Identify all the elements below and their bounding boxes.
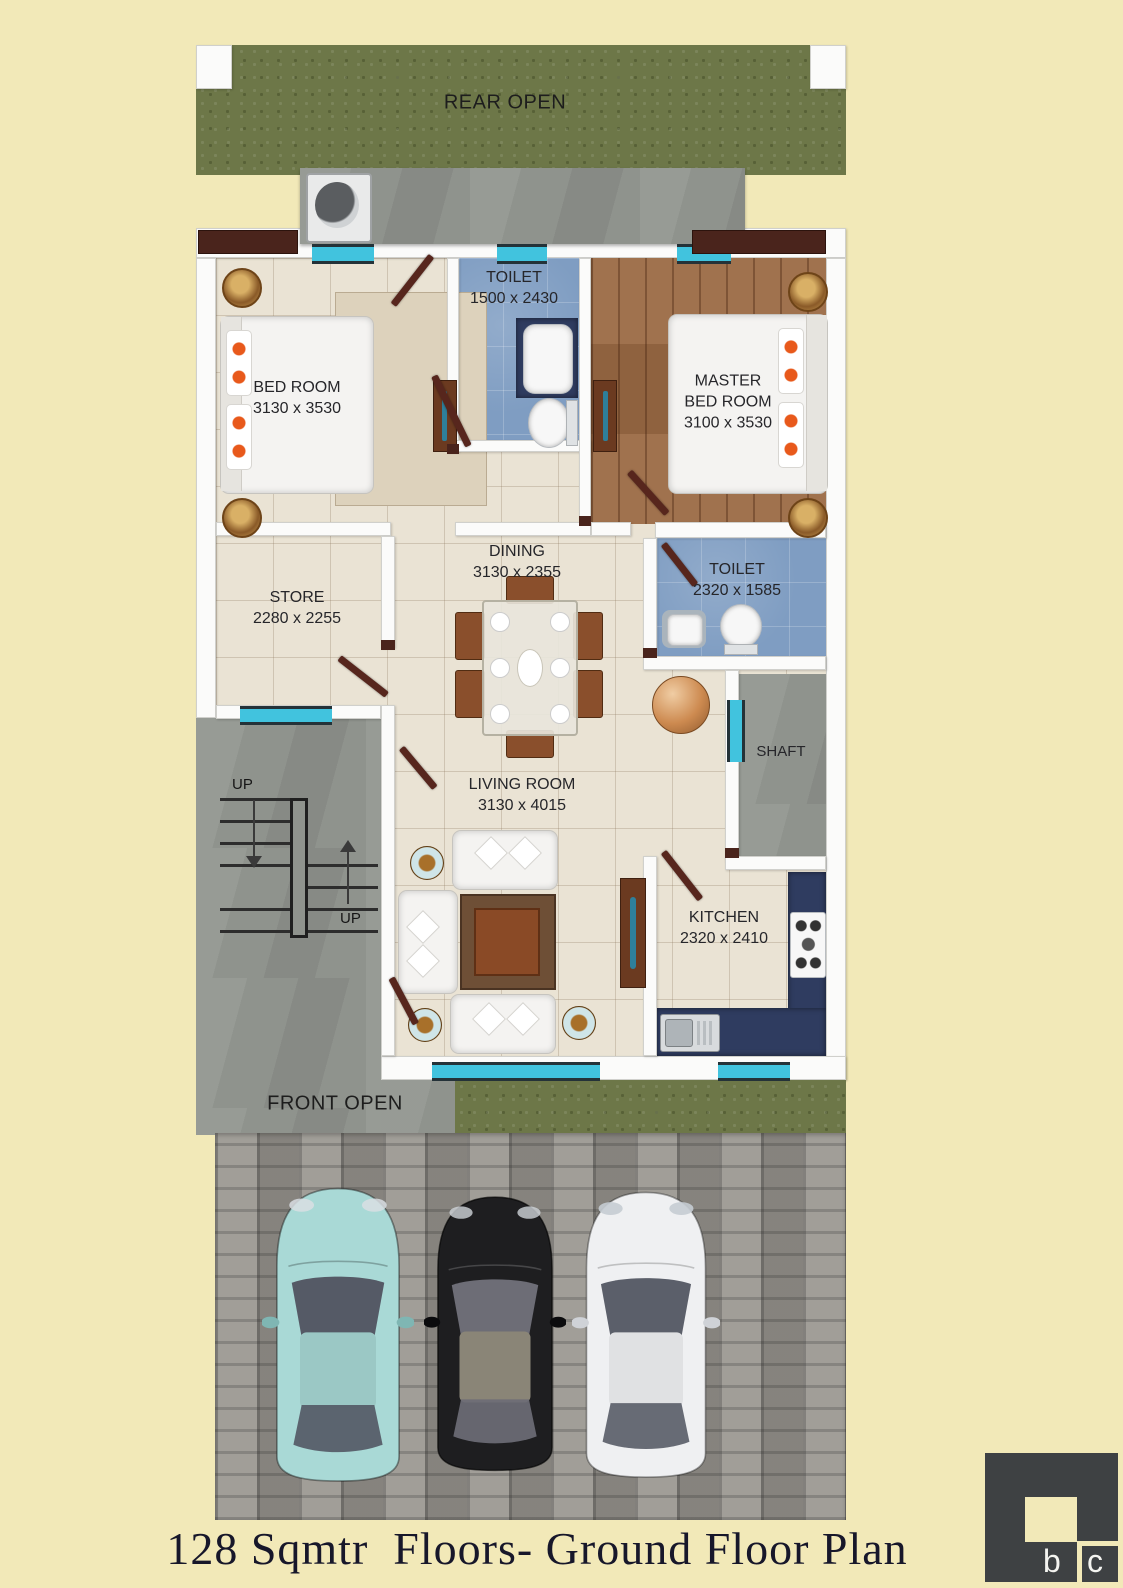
side-table	[410, 846, 444, 880]
master-bedside-table	[788, 498, 828, 538]
sofa-cushion	[406, 944, 440, 978]
kitchen-sink-icon	[660, 1014, 720, 1052]
stair-tread	[220, 820, 290, 823]
store-dims: 2280 x 2255	[253, 608, 341, 629]
plate	[550, 658, 570, 678]
sofa-cushion	[506, 1002, 540, 1036]
plate	[550, 704, 570, 724]
side-table	[562, 1006, 596, 1040]
kitchen-name: KITCHEN	[680, 907, 768, 928]
wall-left	[196, 258, 216, 718]
toilet-mid-name: TOILET	[693, 559, 781, 580]
wall-mid-master	[591, 522, 631, 536]
headlight	[362, 1199, 387, 1212]
window-toilet-top	[497, 244, 547, 264]
bed-pillow	[226, 330, 252, 396]
kitchen-dims: 2320 x 2410	[680, 928, 768, 949]
logo-letter-b: b	[1043, 1545, 1061, 1577]
wc-toilet-top	[528, 398, 570, 448]
headlight	[289, 1199, 314, 1212]
up-label-upper: UP	[340, 910, 361, 927]
teal-car	[262, 1152, 414, 1516]
car-mirror	[424, 1317, 440, 1328]
dining-centerpiece	[517, 649, 543, 687]
sofa-bottom	[450, 994, 556, 1054]
master-name-line1: MASTER	[684, 370, 772, 391]
wardrobe-bedroom	[198, 230, 298, 254]
dining-dims: 3130 x 2355	[473, 562, 561, 583]
logo-letter-c: c	[1087, 1545, 1103, 1577]
dining-name: DINING	[473, 541, 561, 562]
stair-tread	[220, 798, 290, 801]
living-name: LIVING ROOM	[469, 774, 576, 795]
tv-cabinet-living	[620, 878, 646, 988]
toilet-mid-label: TOILET 2320 x 1585	[693, 559, 781, 601]
shaft-floor	[739, 674, 826, 860]
master-name-line2: BED ROOM	[684, 391, 772, 412]
store-label: STORE 2280 x 2255	[253, 587, 341, 629]
wc-tank-top	[566, 400, 578, 446]
wall-shaft-left	[725, 670, 739, 862]
car-mirror	[262, 1317, 279, 1329]
dining-chair	[455, 612, 485, 660]
rear-open-label: REAR OPEN	[444, 92, 566, 115]
rear-pillar-left	[196, 45, 232, 89]
wall-toilet-mid-bottom	[643, 656, 826, 670]
stair-arrow-up	[347, 852, 349, 904]
washing-machine-door	[315, 182, 359, 228]
bedside-table	[222, 498, 262, 538]
living-dims: 3130 x 4015	[469, 795, 576, 816]
stair-tread	[304, 886, 378, 889]
bedroom-name: BED ROOM	[253, 377, 341, 398]
plate	[550, 612, 570, 632]
toilet-top-name: TOILET	[470, 267, 558, 288]
master-bedside-table	[788, 272, 828, 312]
sofa-cushion	[474, 836, 508, 870]
master-pillow	[778, 402, 804, 468]
wall-mid-center	[455, 522, 591, 536]
master-bed-headboard	[806, 315, 827, 491]
stair-divider-wall	[290, 798, 308, 938]
kitchen-label: KITCHEN 2320 x 2410	[680, 907, 768, 949]
sofa-cushion	[472, 1002, 506, 1036]
rear-window	[453, 1399, 536, 1443]
car-mirror	[550, 1317, 566, 1328]
rear-pillar-right	[810, 45, 846, 89]
door-jamb	[643, 648, 657, 658]
rear-window	[293, 1405, 382, 1452]
wardrobe-master	[692, 230, 826, 254]
sink-bowl	[665, 1019, 693, 1047]
tv-screen-icon	[603, 391, 608, 441]
sofa-top	[452, 830, 558, 890]
tv-unit-master	[593, 380, 617, 452]
stair-tread	[304, 864, 378, 867]
windshield	[601, 1278, 691, 1337]
wall-toilet-master	[579, 258, 591, 524]
logo-cutout	[1025, 1497, 1077, 1542]
front-yard-grass	[455, 1080, 846, 1135]
wall-stairs-living	[381, 705, 395, 1056]
wall-dining-toilet-mid	[643, 538, 657, 656]
stair-arrow-down-head	[246, 856, 262, 868]
wall-right	[826, 258, 846, 1080]
window-shaft	[727, 700, 745, 762]
stove-icon	[790, 912, 826, 978]
wc-toilet-mid	[720, 604, 762, 648]
floor-lamp-icon	[652, 676, 710, 734]
wall-kitchen-top	[725, 856, 826, 870]
logo-divider-vertical	[1077, 1541, 1082, 1582]
floor-plan-canvas: REAR OPEN	[0, 0, 1123, 1588]
front-open-label: FRONT OPEN	[267, 1093, 403, 1116]
bed-pillow	[226, 404, 252, 470]
windshield	[452, 1279, 538, 1336]
master-pillow	[778, 328, 804, 394]
stair-tread	[220, 842, 290, 845]
sink-toilet-top	[523, 324, 573, 394]
up-label-lower: UP	[232, 776, 253, 793]
rear-window	[603, 1403, 690, 1449]
tv-screen-icon	[630, 897, 636, 969]
toilet-top-label: TOILET 1500 x 2430	[470, 267, 558, 309]
door-jamb	[447, 444, 459, 454]
dining-chair	[455, 670, 485, 718]
car-roof-shade	[609, 1332, 683, 1406]
bedside-table	[222, 268, 262, 308]
toilet-top-dims: 1500 x 2430	[470, 288, 558, 309]
coffee-table	[474, 908, 540, 976]
master-label: MASTER BED ROOM 3100 x 3530	[684, 370, 772, 433]
car-mirror	[397, 1317, 414, 1329]
wc-tank-mid	[724, 644, 758, 655]
door-jamb	[725, 848, 739, 858]
plate	[490, 612, 510, 632]
washing-machine-icon	[306, 173, 372, 243]
master-dims: 3100 x 3530	[684, 413, 772, 434]
stair-arrow-up-head	[340, 840, 356, 852]
sofa-cushion	[406, 910, 440, 944]
window-store	[240, 706, 332, 725]
black-car	[424, 1150, 566, 1516]
plate	[490, 704, 510, 724]
plate	[490, 658, 510, 678]
window-kitchen-bottom	[718, 1062, 790, 1081]
car-mirror	[572, 1317, 589, 1328]
headlight	[517, 1206, 540, 1218]
shaft-label: SHAFT	[756, 742, 805, 762]
store-name: STORE	[253, 587, 341, 608]
living-label: LIVING ROOM 3130 x 4015	[469, 774, 576, 816]
white-car	[572, 1152, 720, 1516]
toilet-mid-dims: 2320 x 1585	[693, 580, 781, 601]
dining-table	[482, 600, 578, 736]
headlight	[669, 1202, 693, 1215]
wall-store-dining	[381, 536, 395, 648]
bc-logo: b c	[985, 1453, 1118, 1582]
headlight	[599, 1202, 623, 1215]
headlight	[449, 1206, 472, 1218]
door-jamb	[381, 640, 395, 650]
sink-drainboard	[697, 1021, 713, 1045]
sink-toilet-mid	[667, 614, 703, 646]
bedroom-label: BED ROOM 3130 x 3530	[253, 377, 341, 419]
plan-title: 128 Sqmtr Floors- Ground Floor Plan	[166, 1522, 907, 1575]
car-roof	[460, 1331, 531, 1402]
window-living-bottom	[432, 1062, 600, 1081]
car-roof-shade	[300, 1332, 376, 1408]
car-mirror	[703, 1317, 720, 1328]
bedroom-dims: 3130 x 3530	[253, 398, 341, 419]
window-bedroom-top	[312, 244, 374, 264]
windshield	[292, 1277, 385, 1338]
dining-label: DINING 3130 x 2355	[473, 541, 561, 583]
sofa-left	[398, 890, 458, 994]
door-jamb	[579, 516, 591, 526]
sofa-cushion	[508, 836, 542, 870]
stair-arrow-down	[253, 800, 255, 858]
